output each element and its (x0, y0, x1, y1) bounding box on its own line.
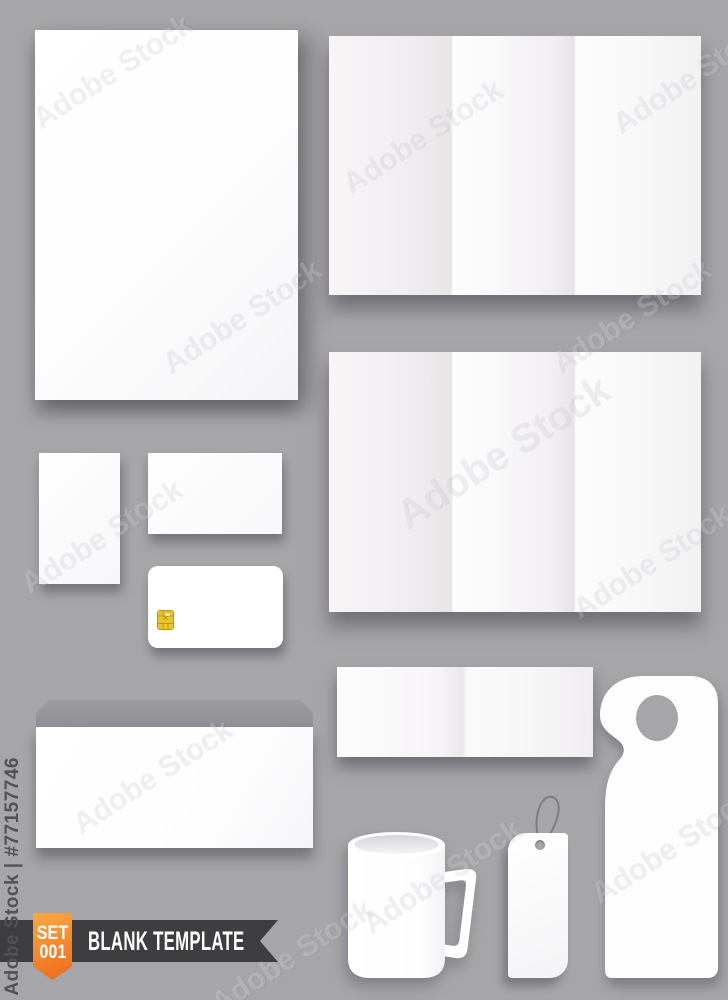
vertical-card (39, 453, 120, 584)
set-badge-line1: SET (37, 924, 68, 943)
ribbon-title: BLANK TEMPLATE (88, 926, 245, 957)
envelope (36, 727, 313, 848)
credit-card (148, 566, 283, 648)
a4-sheet (35, 30, 298, 400)
credit-card-chip-icon (157, 610, 174, 630)
stock-mockup-image: BLANK TEMPLATE SET 001 Adobe Stock | #77… (0, 0, 728, 1000)
side-watermark: Adobe Stock | #77157746 (2, 757, 24, 996)
business-card (148, 453, 282, 534)
set-badge-line2: 001 (39, 943, 66, 962)
set-badge: SET 001 (33, 913, 72, 980)
price-tag-hole (535, 840, 545, 850)
mug (340, 828, 485, 980)
trifold-brochure-middle (329, 352, 701, 612)
trifold-brochure-top (329, 36, 701, 295)
door-hanger (595, 670, 720, 980)
envelope-flap (36, 700, 313, 728)
price-tag (508, 833, 568, 978)
bifold-card (337, 667, 593, 757)
mug-body (348, 845, 445, 978)
mug-rim-inner (355, 835, 439, 854)
mug-handle (444, 869, 476, 958)
